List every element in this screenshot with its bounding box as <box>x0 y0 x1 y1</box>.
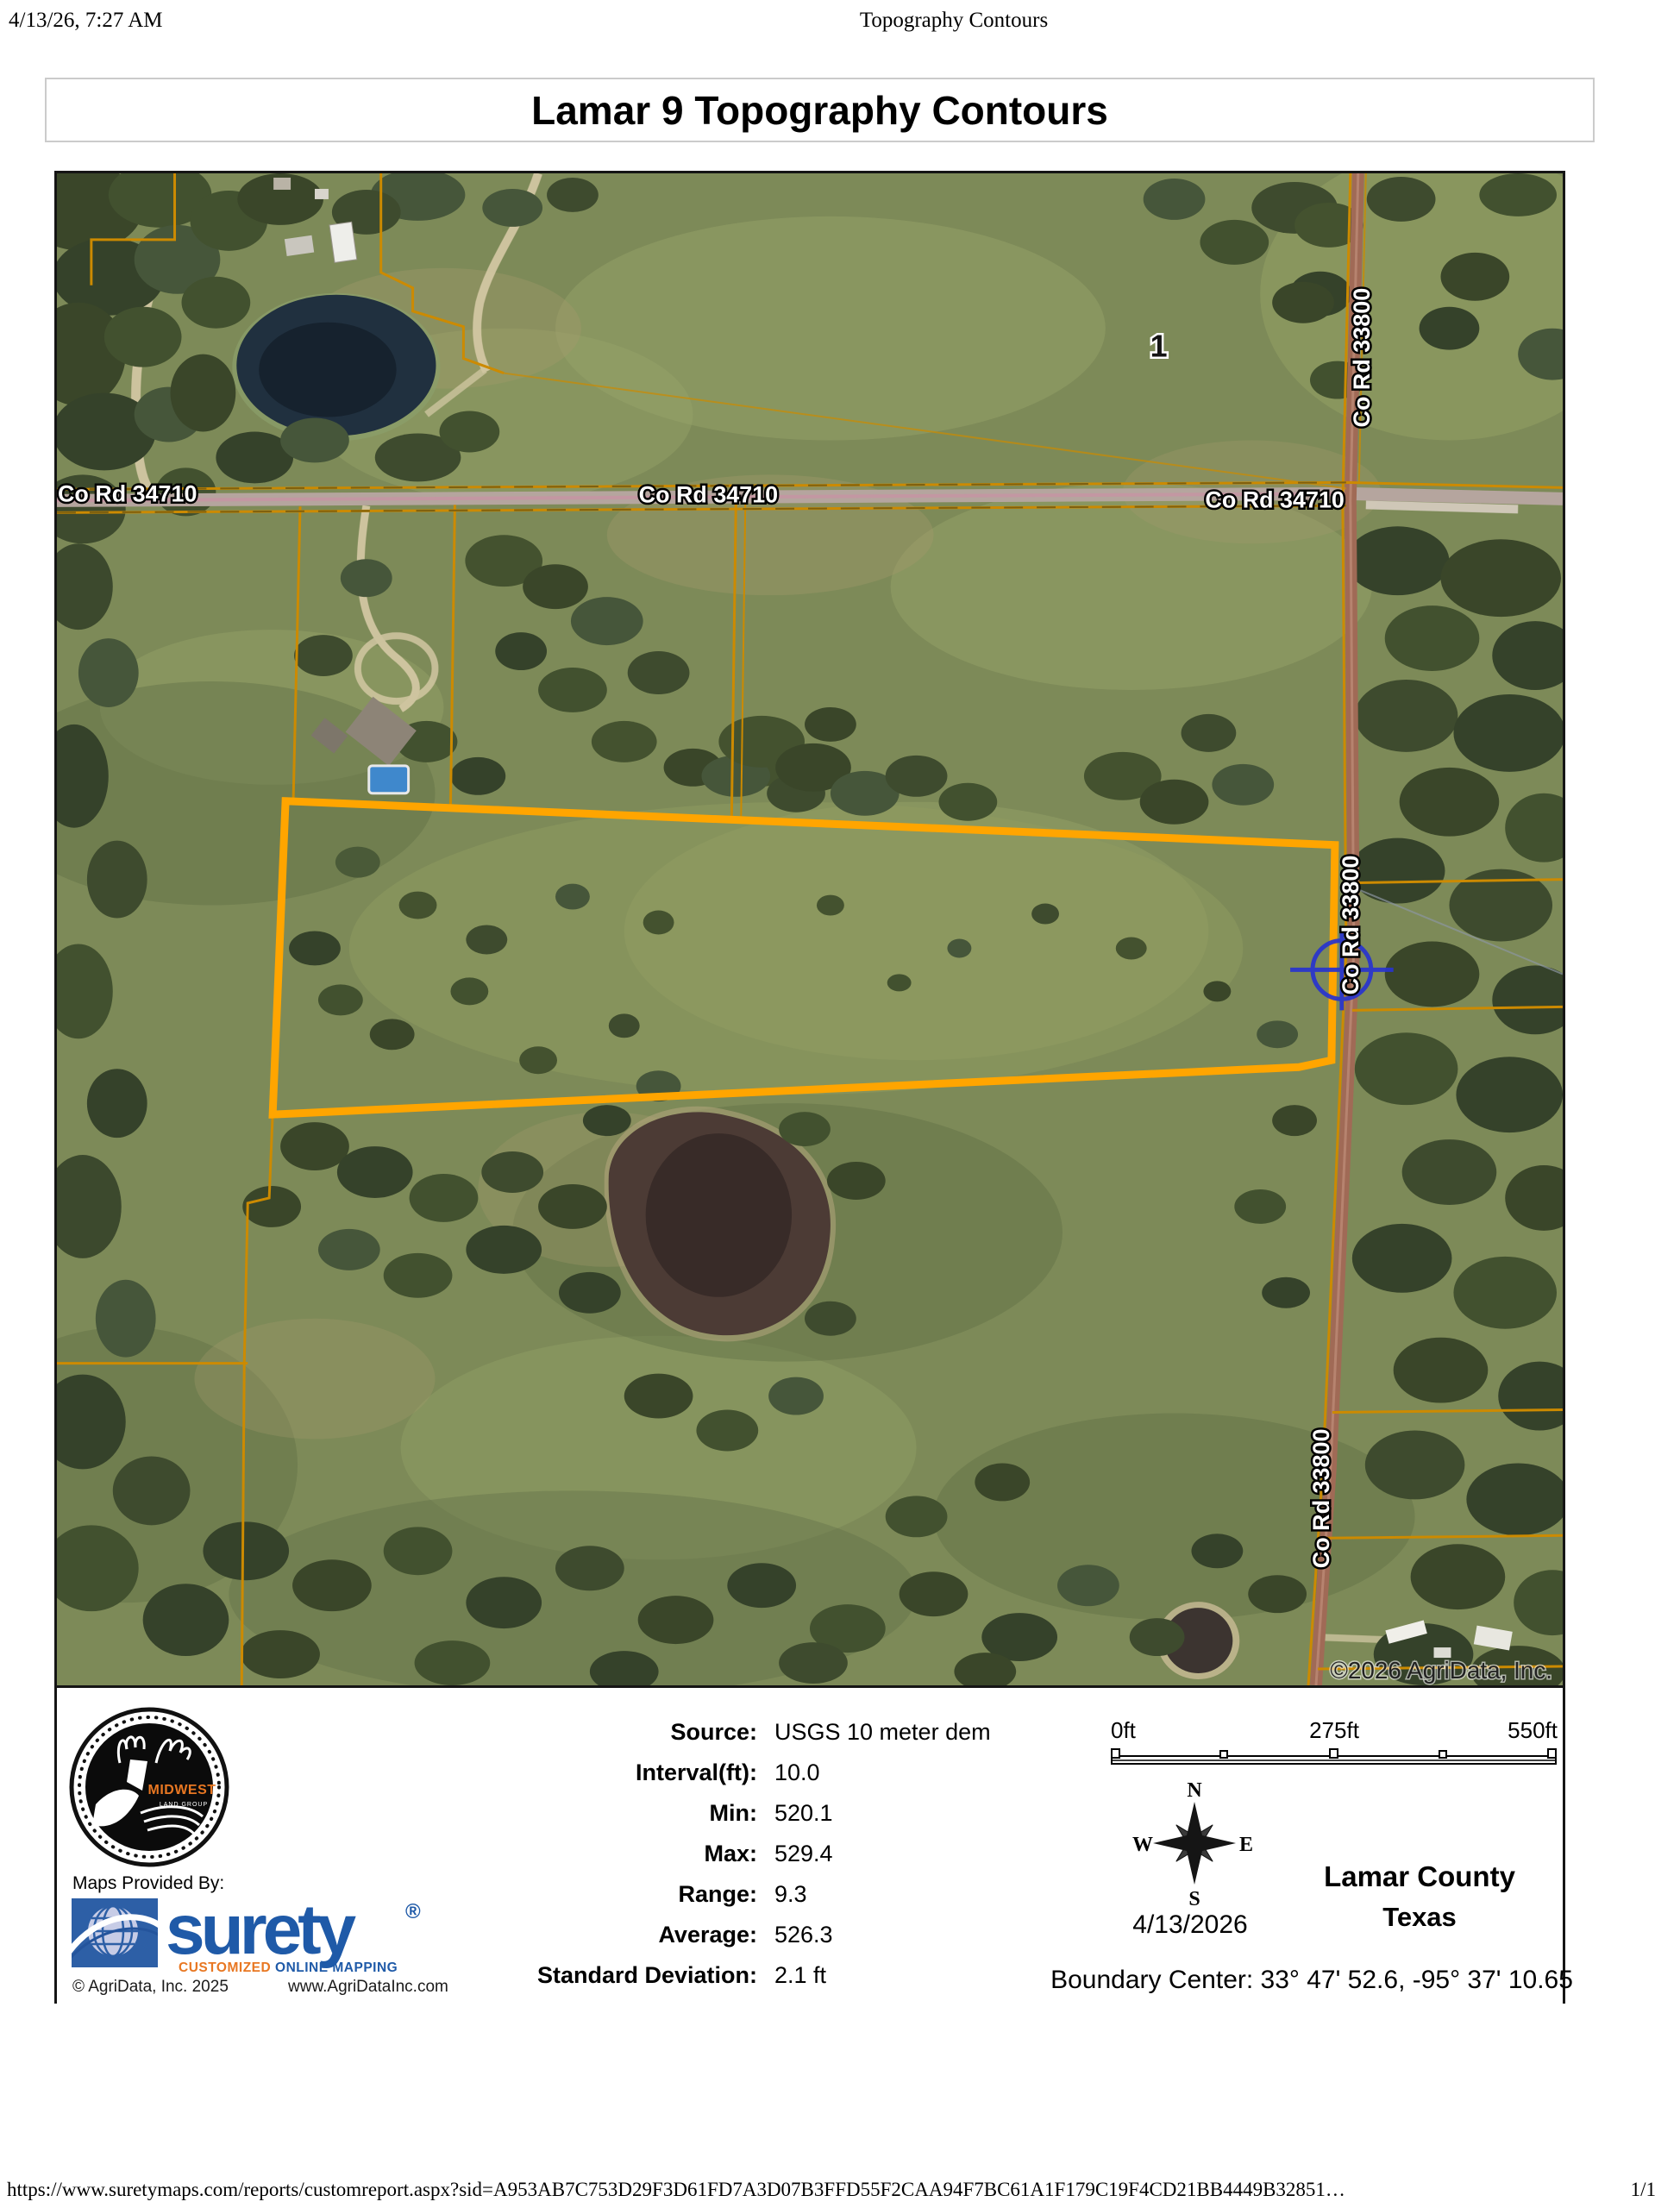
compass-east: E <box>1239 1834 1253 1856</box>
scale-start: 0ft <box>1111 1717 1136 1744</box>
state-name: Texas <box>1382 1902 1457 1933</box>
scale-middle: 275ft <box>1309 1717 1359 1744</box>
road-label-33800-south: Co Rd 33800 <box>1308 1428 1334 1568</box>
surety-globe-icon <box>72 1898 158 1967</box>
print-document-title: Topography Contours <box>860 9 1048 33</box>
scale-bar <box>1111 1748 1558 1767</box>
swimming-pool <box>369 766 409 793</box>
legend-panel: MIDWEST LAND GROUP Maps Provided By: sur… <box>57 1685 1563 2004</box>
parcel-number-label: 1 <box>1150 329 1168 364</box>
aerial-imagery: Co Rd 34710 Co Rd 34710 Co Rd 34710 Co R… <box>57 173 1563 1685</box>
road-label-33800-north: Co Rd 33800 <box>1349 288 1375 428</box>
midwest-land-group-logo: MIDWEST LAND GROUP <box>67 1705 231 1869</box>
road-label-33800-middle: Co Rd 33800 <box>1338 856 1363 995</box>
scale-end: 550ft <box>1508 1717 1558 1744</box>
county-name: Lamar County <box>1324 1860 1515 1893</box>
boundary-center-coordinates: Boundary Center: 33° 47' 52.6, -95° 37' … <box>1050 1966 1573 1995</box>
midwest-logo-subtitle: LAND GROUP <box>160 1802 208 1808</box>
surety-tagline-customized: CUSTOMIZED <box>179 1960 271 1975</box>
print-timestamp: 4/13/26, 7:27 AM <box>9 9 163 33</box>
compass-north: N <box>1187 1779 1202 1802</box>
printed-report-page: 4/13/26, 7:27 AM Topography Contours Lam… <box>0 0 1680 2208</box>
pond <box>232 293 440 442</box>
report-title-box: Lamar 9 Topography Contours <box>45 78 1595 142</box>
print-url: https://www.suretymaps.com/reports/custo… <box>7 2179 1345 2201</box>
aerial-map: Co Rd 34710 Co Rd 34710 Co Rd 34710 Co R… <box>57 173 1563 1685</box>
road-label-34710-east: Co Rd 34710 <box>1205 486 1344 512</box>
compass-rose-icon: N S W E <box>1132 1774 1257 1912</box>
road-label-34710-center: Co Rd 34710 <box>639 481 778 507</box>
report-title: Lamar 9 Topography Contours <box>531 87 1108 134</box>
map-date: 4/13/2026 <box>1132 1910 1247 1940</box>
midwest-logo-title: MIDWEST <box>147 1783 216 1797</box>
agridata-copyright: © AgriData, Inc. 2025 <box>72 1978 229 1997</box>
road-label-34710-west: Co Rd 34710 <box>58 480 197 506</box>
compass-west: W <box>1132 1834 1153 1856</box>
map-copyright: ©2026 AgriData, Inc. <box>1330 1657 1552 1684</box>
compass-south: S <box>1188 1888 1200 1910</box>
report-frame: Co Rd 34710 Co Rd 34710 Co Rd 34710 Co R… <box>54 171 1565 2004</box>
page-indicator: 1/1 <box>1631 2179 1656 2201</box>
